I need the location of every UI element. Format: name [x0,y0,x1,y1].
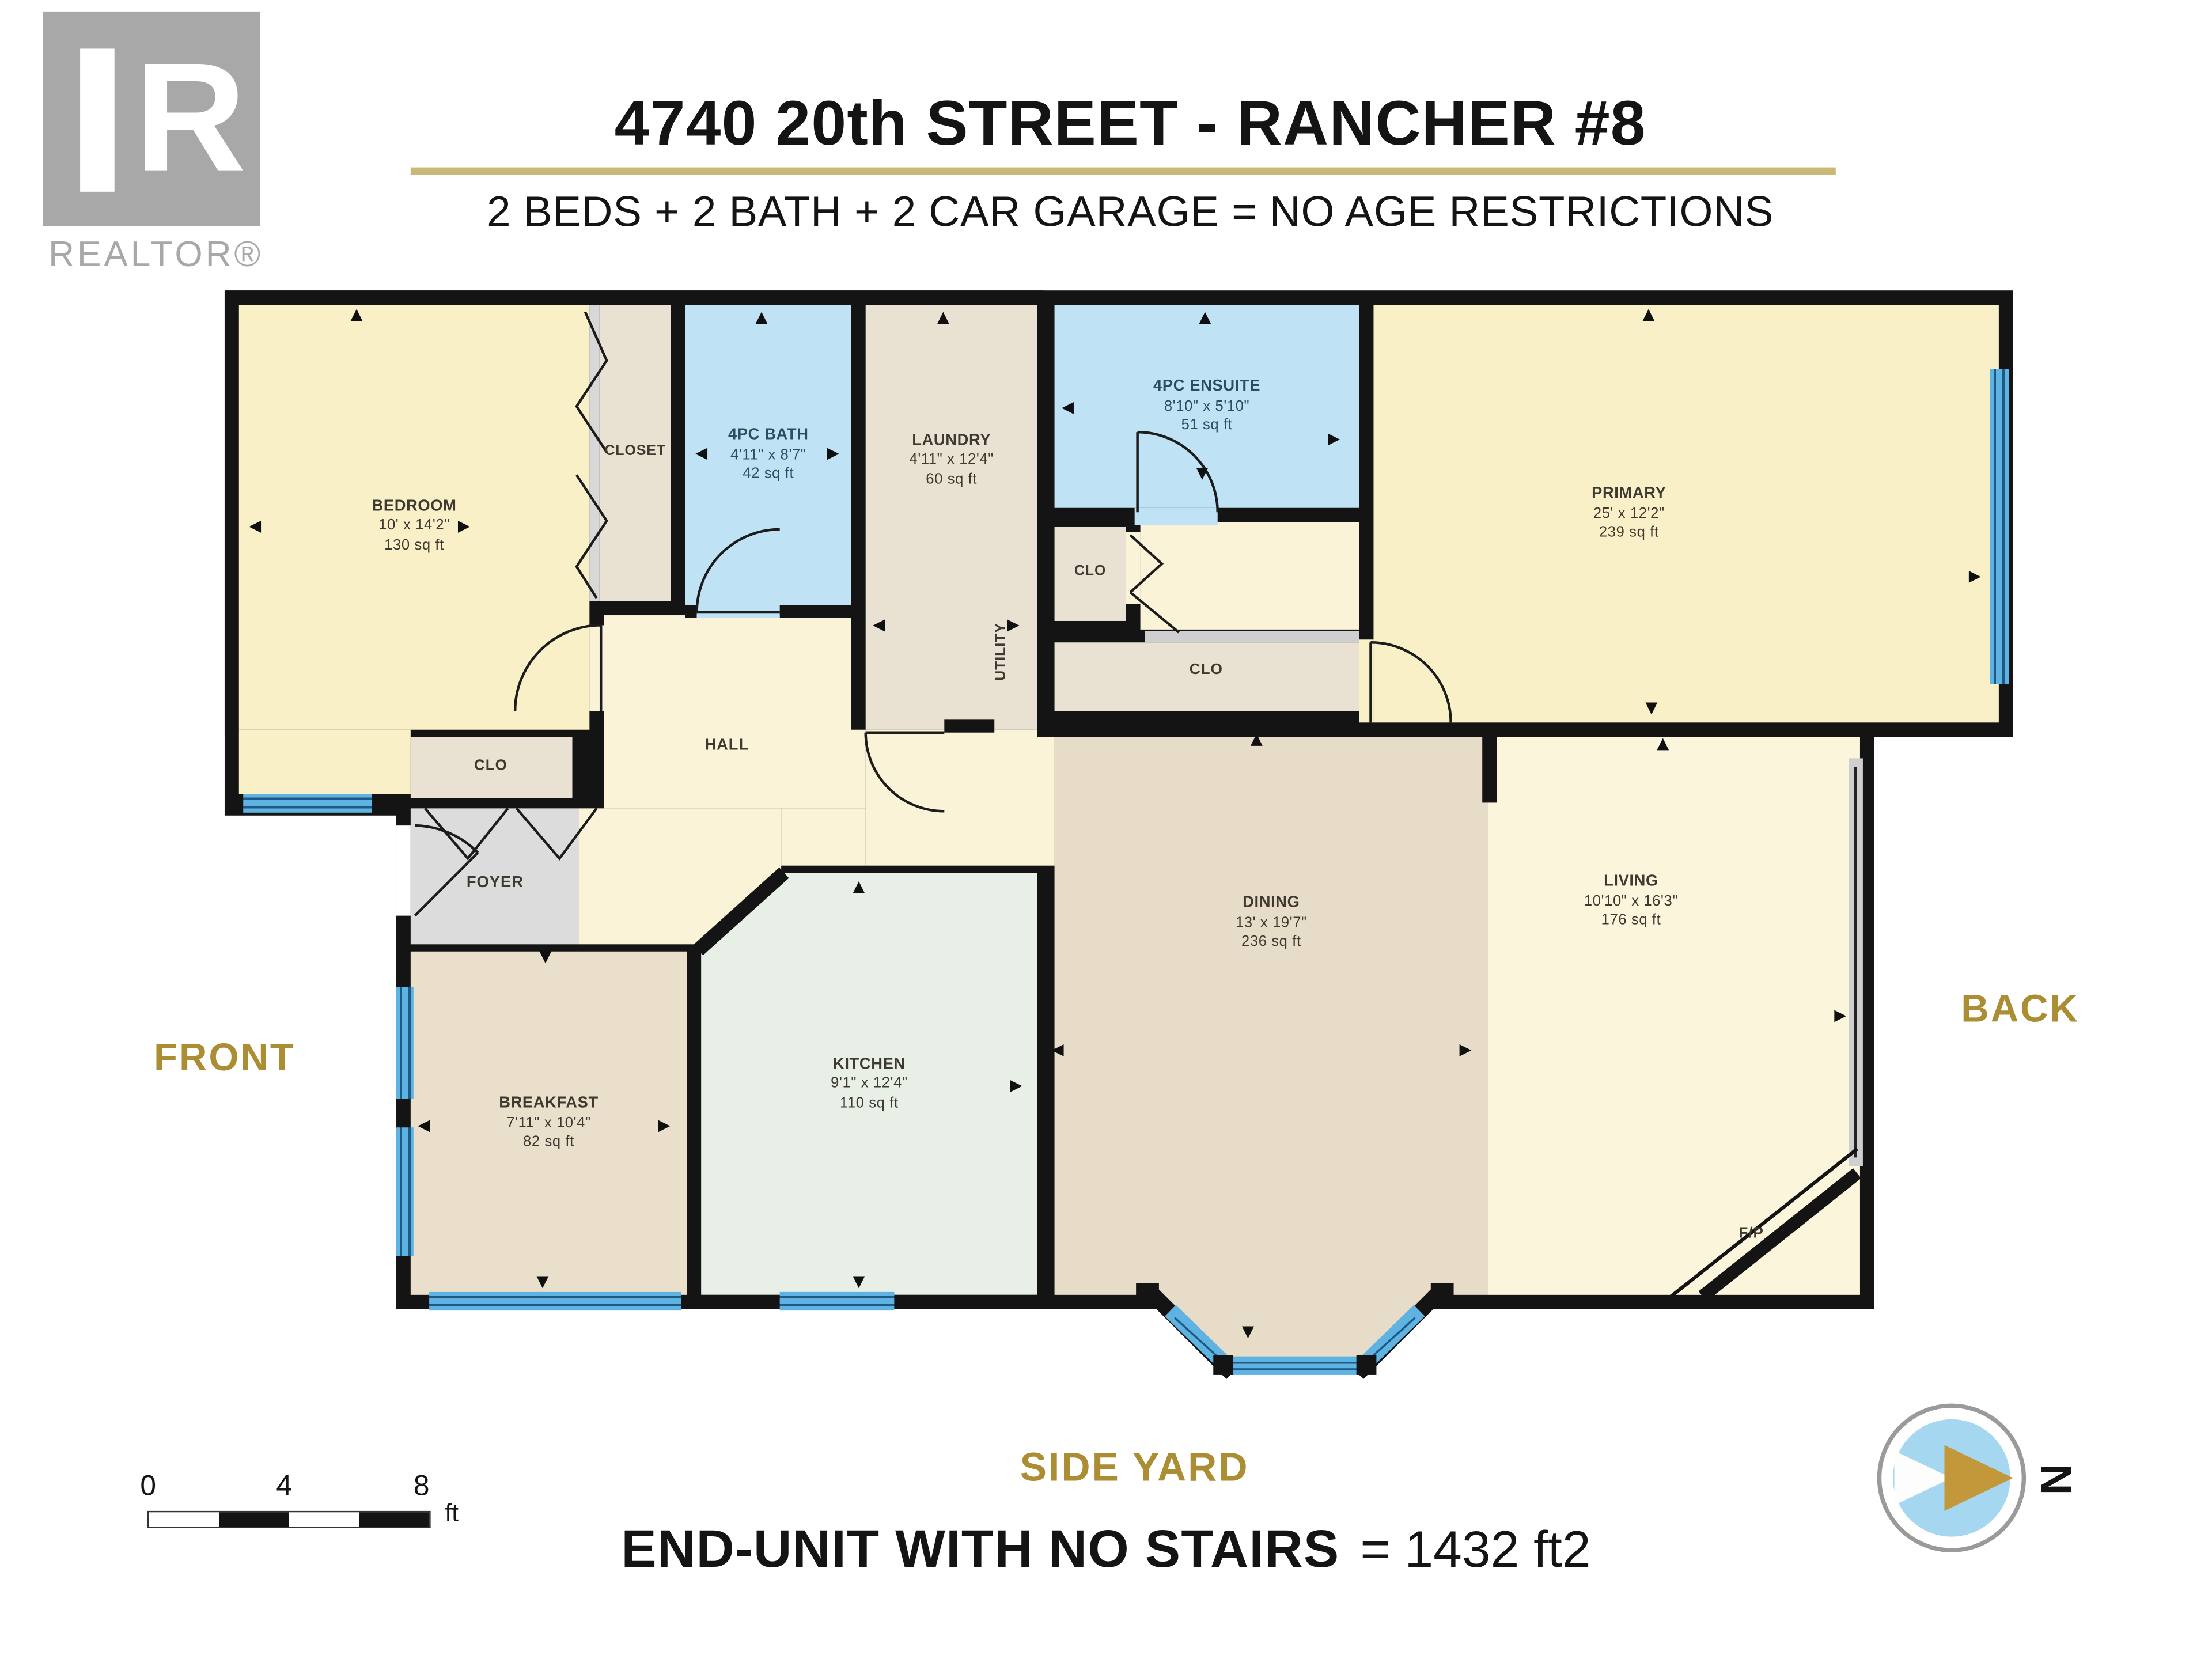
fireplace-wall-thin [1671,1149,1857,1296]
compass-north-label: N [2030,1464,2078,1495]
label-clo-small: CLO [1055,564,1126,579]
bay-corner-br [1357,1355,1377,1375]
dimension-arrow: ▶ [1010,1077,1022,1093]
dimension-arrow: ◀ [695,445,707,460]
dimension-arrow: ▼ [1242,1324,1254,1339]
dimension-arrow: ◀ [249,518,261,533]
label-foyer: FOYER [438,874,552,892]
dimension-arrow: ▶ [458,518,470,533]
dimension-arrow: ◀ [1062,399,1074,415]
compass-needle-west [1895,1451,1952,1505]
closet-bifold-top [577,312,607,452]
label-utility: UTILITY [994,588,1009,717]
compass: N [1877,1404,2026,1552]
scale-tick-4: 4 [276,1471,292,1503]
bay-corner-tr [1431,1283,1454,1302]
bay-corner-tl [1136,1283,1159,1302]
door-arc-primary [1370,642,1450,722]
bay-corner-bl [1213,1355,1233,1375]
dimension-arrow: ▼ [1645,700,1657,715]
dimension-arrow: ▶ [1328,431,1340,446]
closet-bifold-bottom [577,475,607,599]
dimension-arrow: ▲ [1251,731,1263,747]
dimension-arrow: ▼ [1196,465,1208,480]
dimension-arrow: ▲ [853,878,865,894]
kitchen-chamfer-wall [698,873,784,950]
footer-summary-bold: END-UNIT WITH NO STAIRS [621,1520,1339,1578]
dimension-arrow: ▲ [937,309,949,325]
dimension-arrow: ▼ [536,1274,548,1289]
dimension-arrow: ▲ [1657,736,1669,751]
label-hall: HALL [669,737,784,754]
door-arc-front-entry [415,825,478,915]
dimension-arrow: ▲ [755,309,767,325]
dimension-arrow: ▶ [1969,568,1981,584]
door-arc-bedroom [515,625,601,711]
label-closet: CLOSET [586,444,684,459]
label-back: BACK [1920,987,2120,1032]
door-arc-laundry [866,733,945,812]
dimension-arrow: ▲ [1199,309,1211,325]
bifold-doors [425,312,1179,858]
label-clo-wide: CLO [1159,661,1253,679]
fireplace [1671,1149,1857,1296]
dimension-arrow: ▶ [1459,1041,1471,1057]
scale-tick-0: 0 [140,1471,156,1503]
clo-small-door [1130,535,1179,632]
dimension-arrow: ▲ [1642,306,1654,322]
dimension-arrow: ▲ [351,306,363,322]
dimension-arrow: ▼ [853,1274,865,1289]
footer-summary-rest: = 1432 ft2 [1360,1520,1590,1578]
bay-window-bottom [1225,1357,1365,1375]
dimension-arrow: ▶ [1834,1007,1846,1023]
door-arc-bath [697,529,780,612]
dimension-arrow: ◀ [418,1118,430,1133]
floorplan-page: R REALTOR® 4740 20th STREET - RANCHER #8… [0,0,2212,1659]
dimension-arrow: ▶ [827,445,839,460]
dimension-arrow: ◀ [873,617,885,632]
label-clo-foyer: CLO [444,757,538,774]
dimension-arrow: ▼ [539,949,551,964]
bay-window [1136,1283,1453,1375]
compass-needle-north [1944,1445,2013,1511]
dimension-arrow: ▶ [1007,617,1020,632]
label-side-yard: SIDE YARD [920,1445,1349,1491]
scale-tick-8: 8 [414,1471,430,1503]
dimension-arrow: ◀ [1052,1041,1064,1057]
dimension-arrow: ▶ [658,1118,671,1133]
label-fireplace: F/P [1711,1225,1791,1242]
label-front: FRONT [118,1036,332,1080]
